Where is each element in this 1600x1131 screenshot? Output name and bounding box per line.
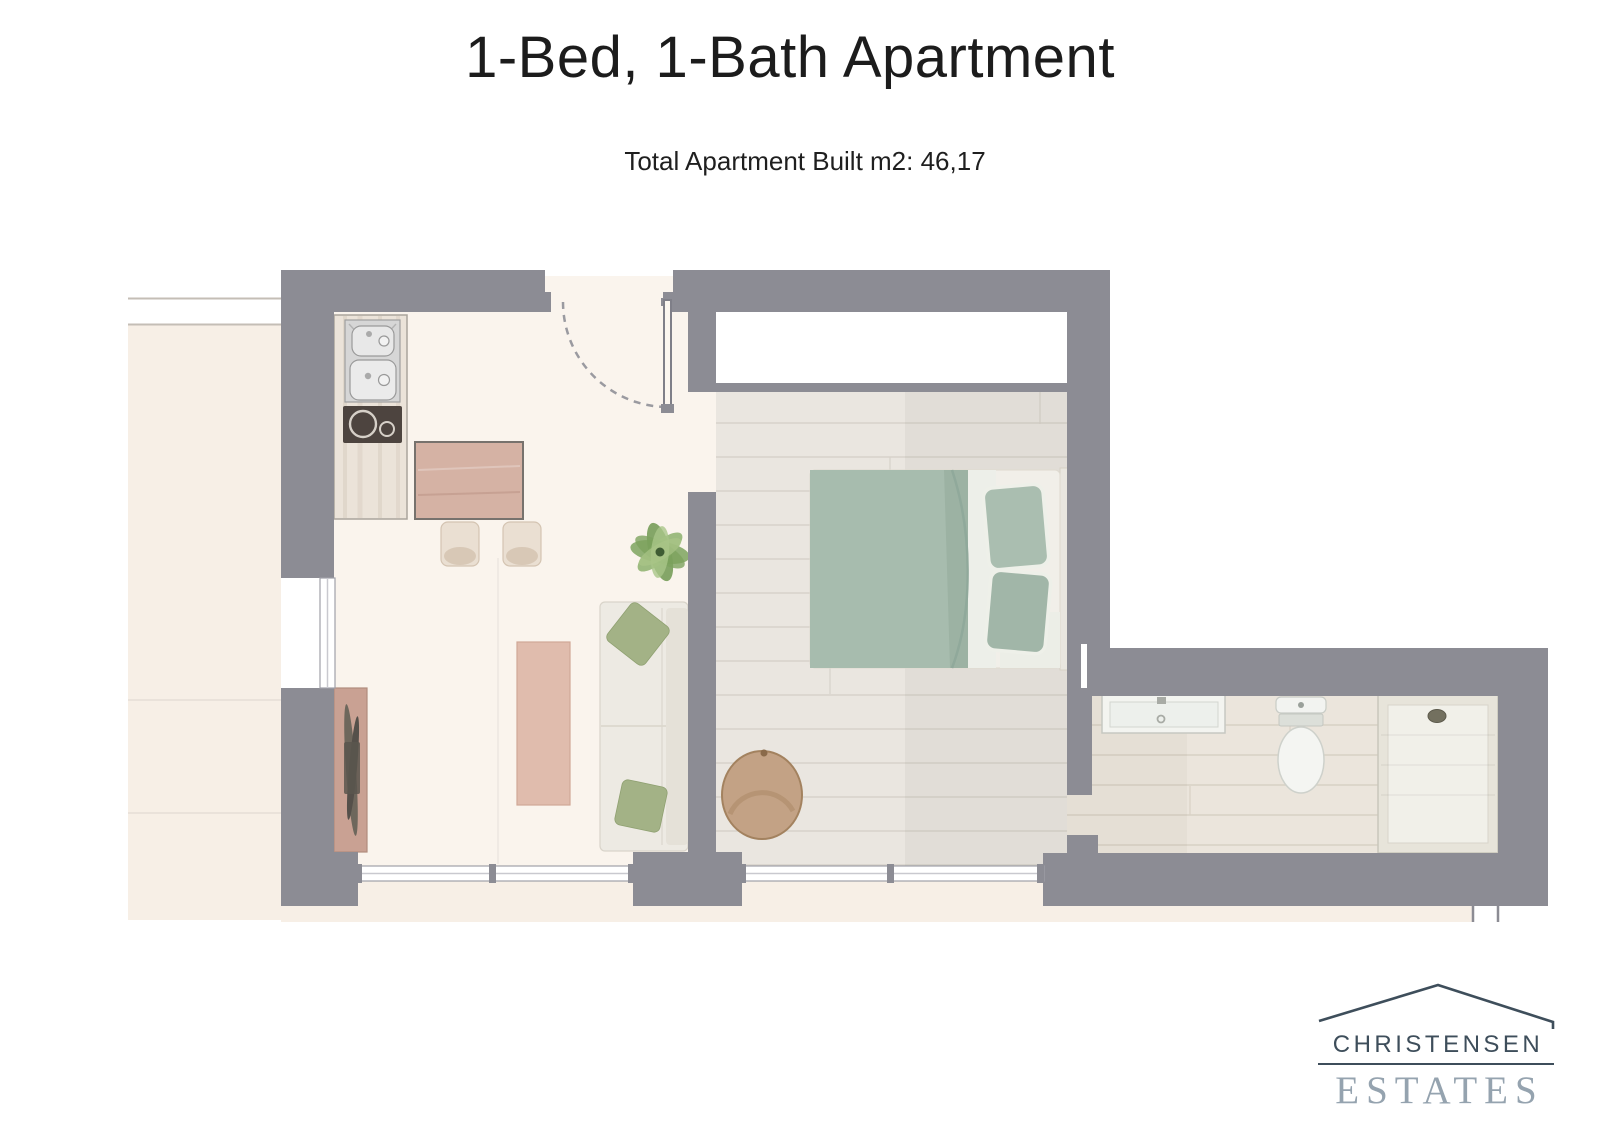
- logo-brand-name: CHRISTENSEN: [1329, 1031, 1544, 1059]
- logo-division-name: ESTATES: [1328, 1068, 1543, 1113]
- window: [355, 864, 635, 883]
- sofa: [600, 600, 688, 851]
- brand-logo: CHRISTENSEN ESTATES: [1310, 968, 1562, 1113]
- window: [739, 864, 1044, 883]
- cooktop: [343, 406, 402, 443]
- dining-chair: [441, 522, 479, 566]
- kitchen-sink: [345, 320, 400, 402]
- roof-icon: [1313, 968, 1559, 1030]
- terrace-edge-ticks: [1473, 906, 1498, 922]
- floor-plan-page: { "header": { "title": "1-Bed, 1-Bath Ap…: [0, 0, 1600, 1131]
- floor-plan: [0, 0, 1600, 1131]
- sideboard: [334, 688, 367, 852]
- bed: [810, 468, 1076, 670]
- dining-chair: [503, 522, 541, 566]
- armchair: [722, 750, 802, 840]
- toilet: [1276, 697, 1326, 793]
- window: [320, 578, 335, 688]
- pocket-door-marker: [1081, 644, 1087, 688]
- coffee-table: [517, 642, 570, 805]
- dining-table: [415, 442, 523, 519]
- logo-divider: [1318, 1063, 1554, 1065]
- shower: [1378, 695, 1498, 853]
- vanity-sink: [1102, 695, 1225, 733]
